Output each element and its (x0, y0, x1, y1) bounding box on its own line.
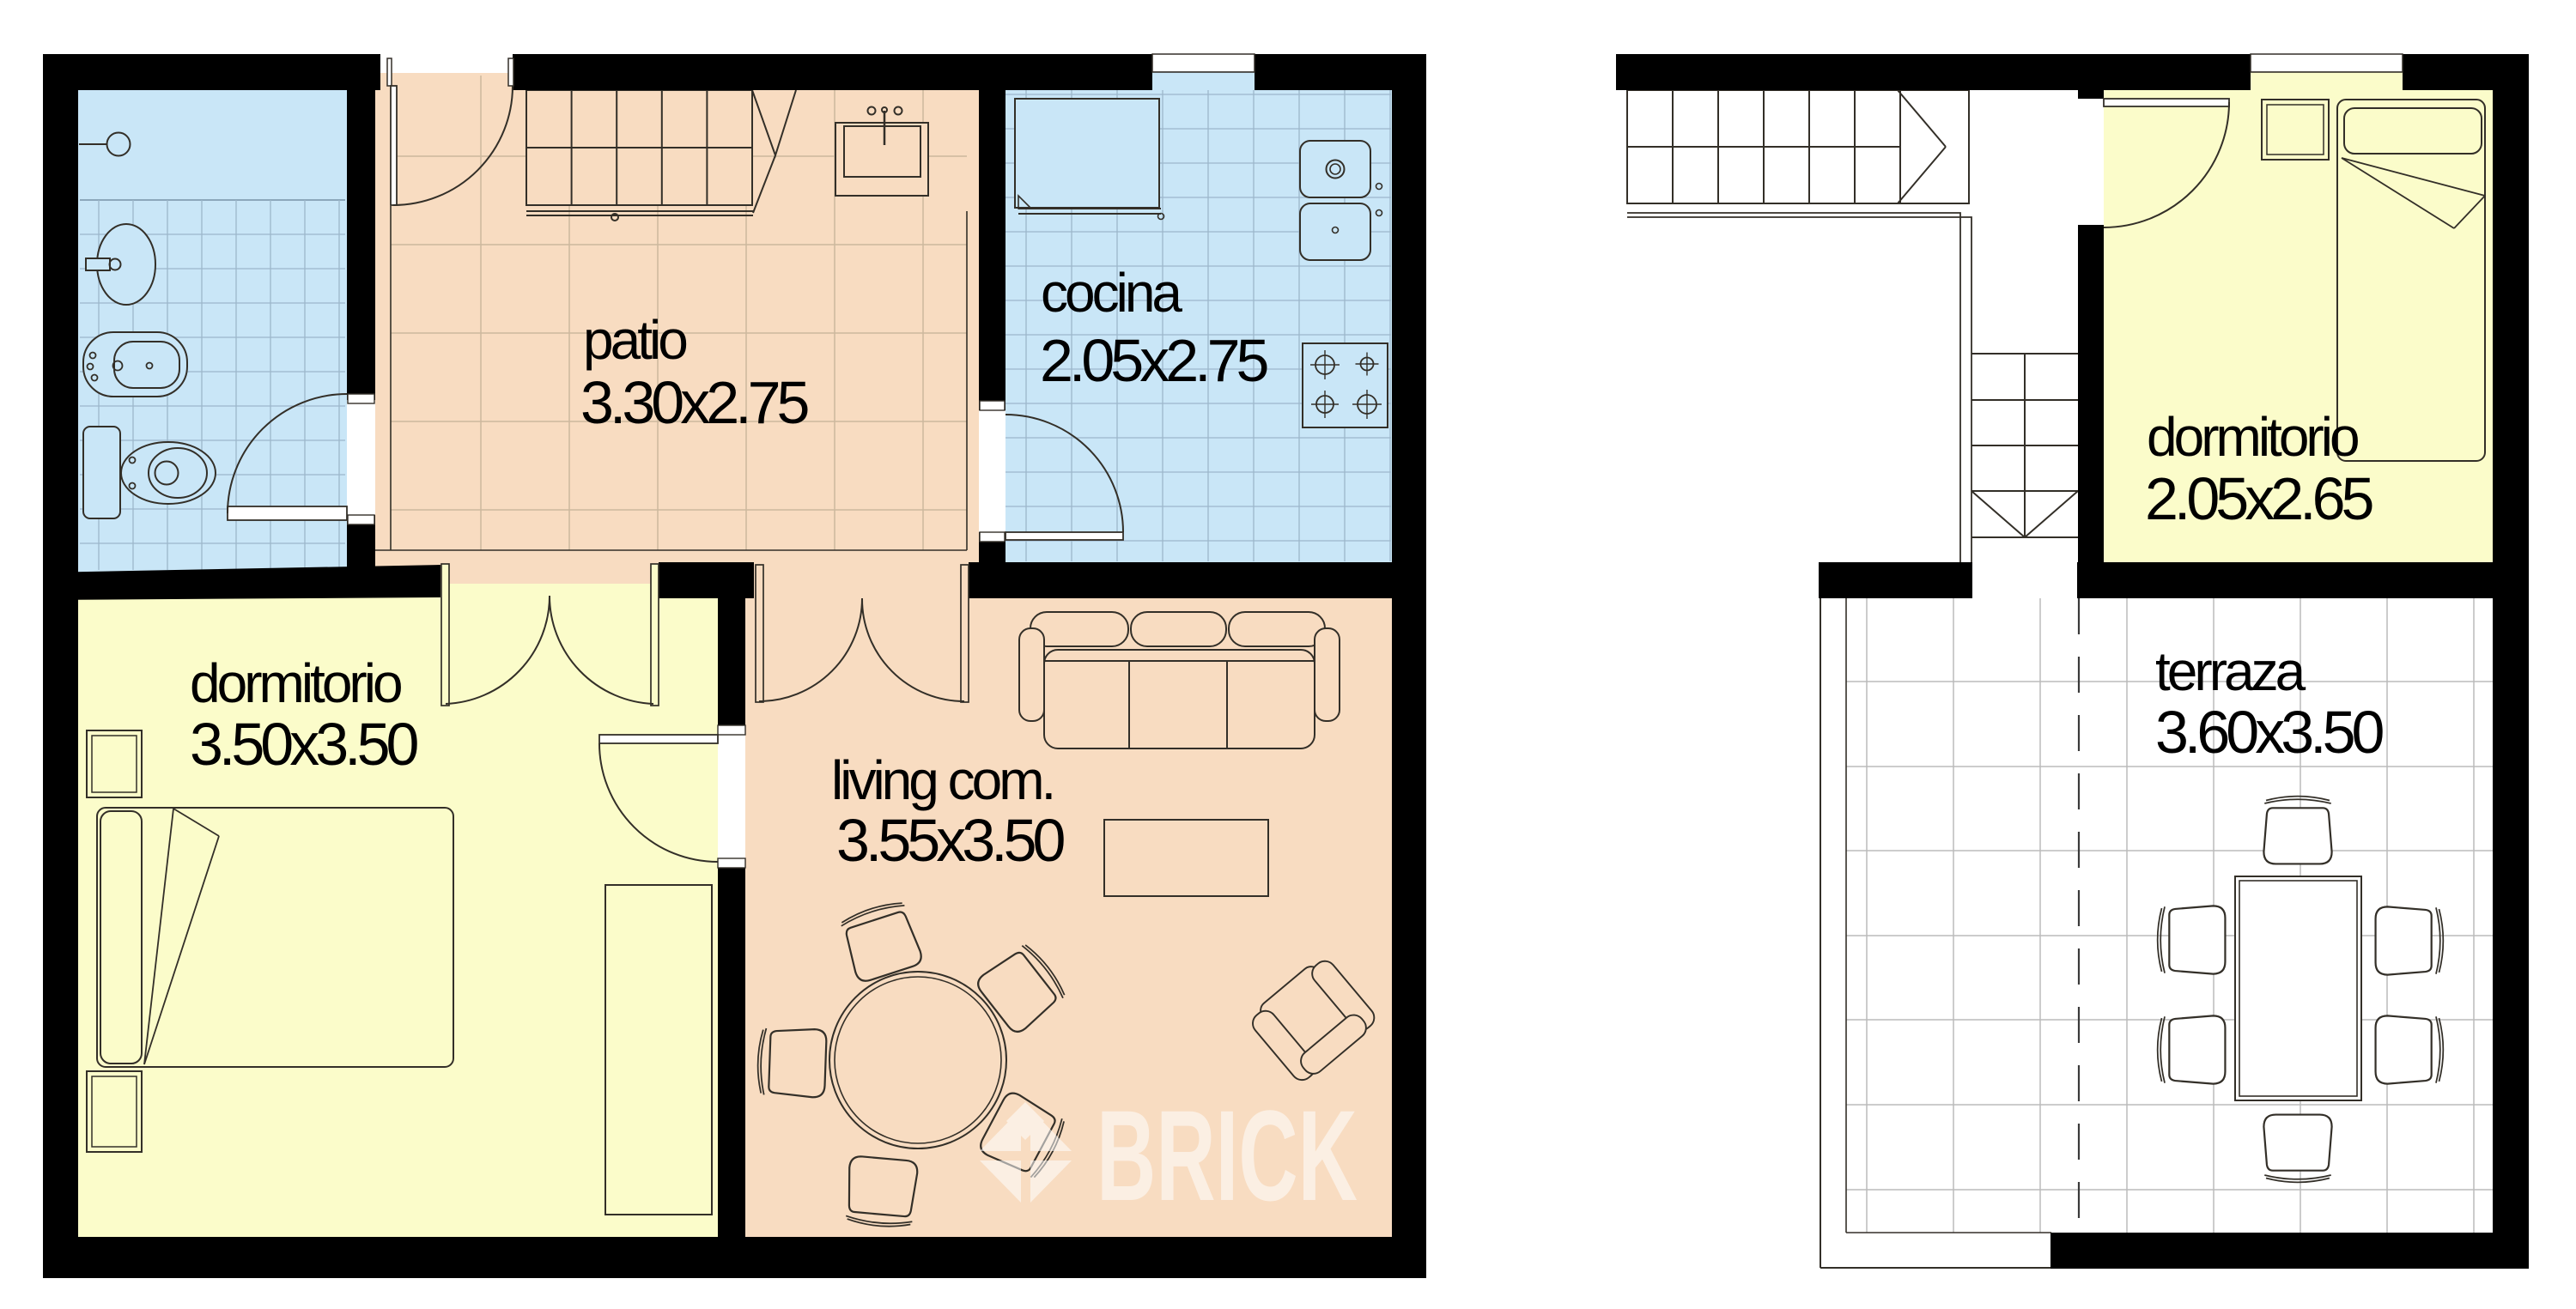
svg-text:BRICK: BRICK (1097, 1083, 1358, 1227)
svg-text:3.50x3.50: 3.50x3.50 (190, 711, 418, 778)
svg-text:2.05x2.65: 2.05x2.65 (2145, 465, 2372, 532)
svg-text:2.05x2.75: 2.05x2.75 (1040, 327, 1267, 394)
svg-text:3.30x2.75: 3.30x2.75 (580, 369, 808, 436)
svg-text:3.60x3.50: 3.60x3.50 (2155, 699, 2384, 766)
svg-text:patio: patio (583, 309, 686, 371)
svg-text:3.55x3.50: 3.55x3.50 (836, 807, 1065, 874)
svg-text:cocina: cocina (1041, 262, 1182, 324)
svg-text:dormitorio: dormitorio (190, 652, 401, 714)
svg-text:living com.: living com. (831, 749, 1053, 811)
svg-text:dormitorio: dormitorio (2147, 406, 2358, 468)
svg-text:terraza: terraza (2155, 640, 2306, 702)
